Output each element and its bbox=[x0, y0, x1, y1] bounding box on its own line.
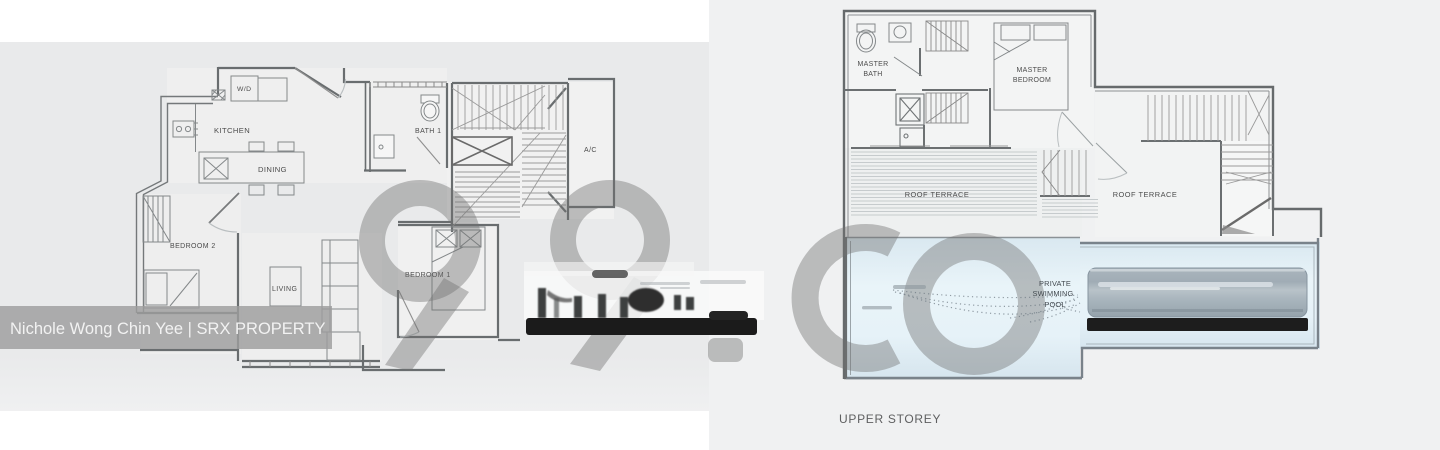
svg-text:DINING: DINING bbox=[258, 165, 287, 174]
svg-text:MASTER: MASTER bbox=[858, 61, 889, 68]
svg-text:POOL: POOL bbox=[1044, 300, 1065, 309]
svg-text:BEDROOM: BEDROOM bbox=[1013, 77, 1051, 84]
svg-text:ROOF TERRACE: ROOF TERRACE bbox=[1113, 190, 1178, 199]
svg-text:LIVING: LIVING bbox=[272, 286, 297, 293]
svg-text:PRIVATE: PRIVATE bbox=[1039, 279, 1071, 288]
svg-text:SWIMMING: SWIMMING bbox=[1032, 289, 1073, 298]
svg-text:A/C: A/C bbox=[584, 147, 597, 154]
svg-text:Nichole Wong Chin Yee | SRX PR: Nichole Wong Chin Yee | SRX PROPERTY bbox=[10, 320, 326, 338]
svg-text:ROOF TERRACE: ROOF TERRACE bbox=[905, 190, 970, 199]
svg-text:BATH 1: BATH 1 bbox=[415, 128, 441, 135]
svg-text:KITCHEN: KITCHEN bbox=[214, 126, 250, 135]
svg-text:BATH: BATH bbox=[863, 71, 882, 78]
svg-text:BEDROOM 2: BEDROOM 2 bbox=[170, 243, 216, 250]
svg-text:UPPER STOREY: UPPER STOREY bbox=[839, 412, 941, 426]
svg-text:MASTER: MASTER bbox=[1017, 67, 1048, 74]
svg-text:W/D: W/D bbox=[237, 86, 251, 93]
